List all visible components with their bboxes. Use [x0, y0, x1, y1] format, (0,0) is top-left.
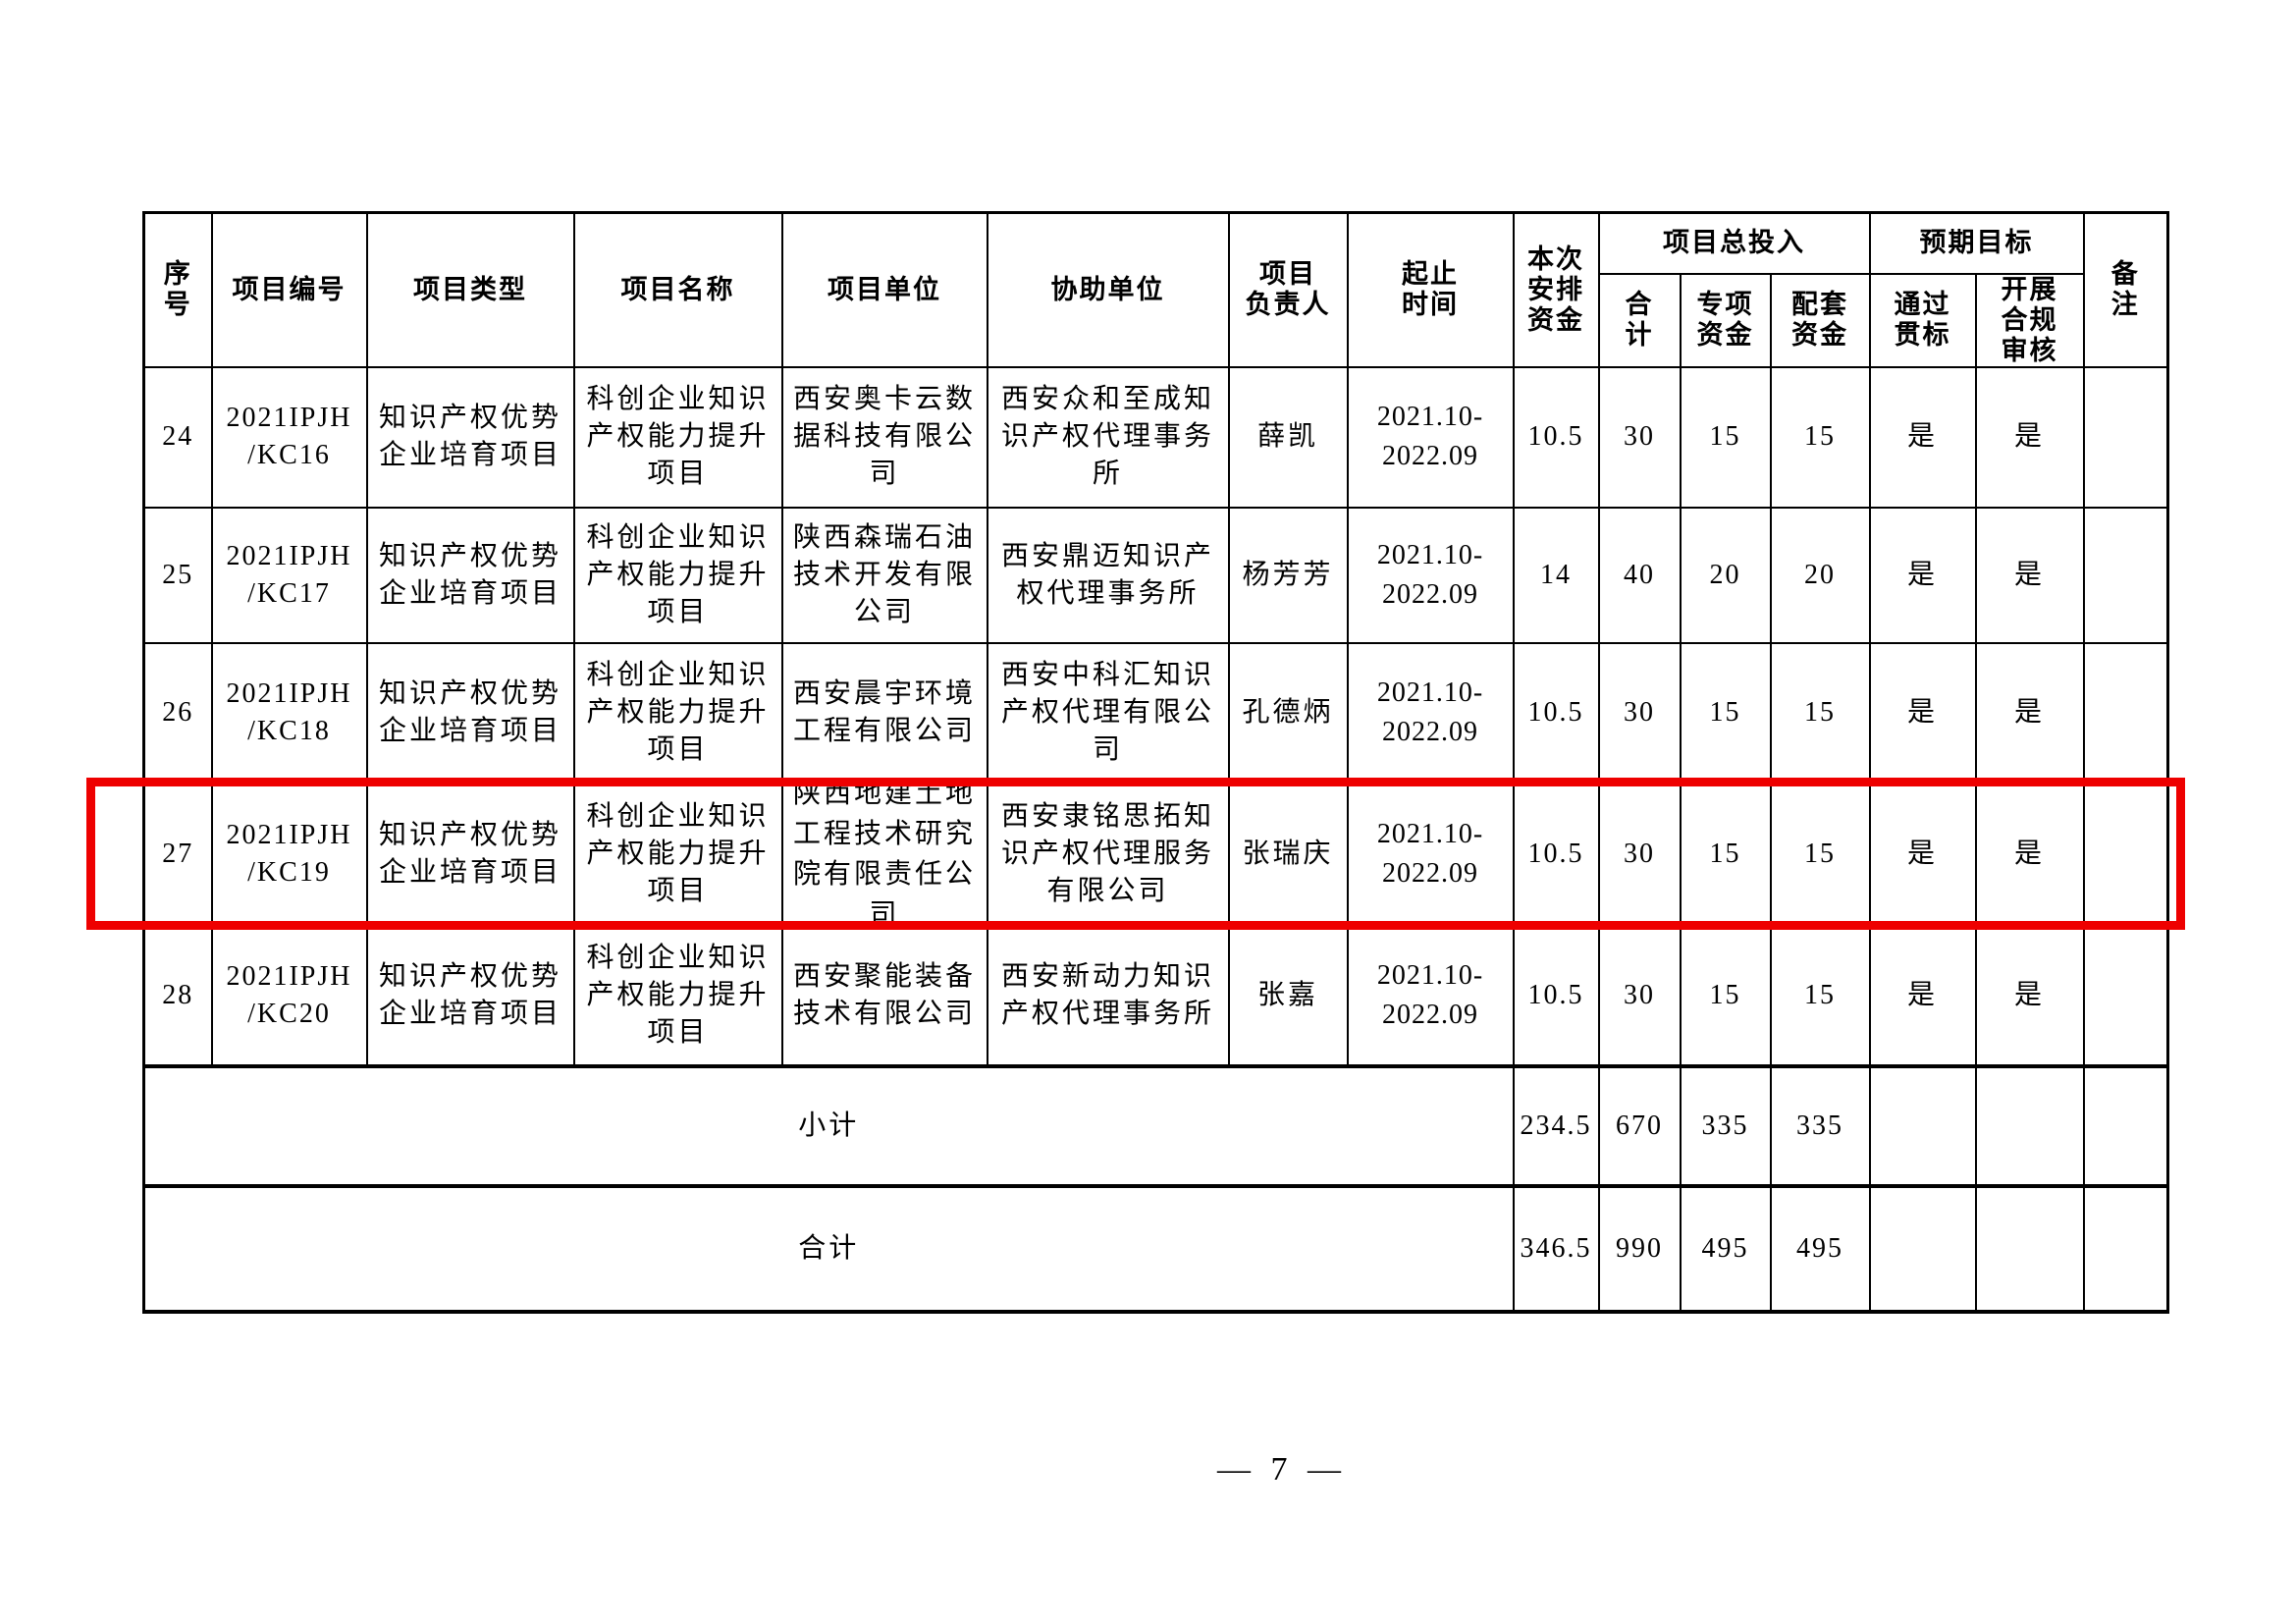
row24-code: 2021IPJH /KC16 — [212, 367, 367, 508]
row24-assist: 西安众和至成知 识产权代理事务 所 — [988, 367, 1229, 508]
row28-unit: 西安聚能装备 技术有限公司 — [782, 926, 988, 1066]
grand-total-review — [1976, 1186, 2084, 1312]
grand-total-special: 495 — [1681, 1186, 1771, 1312]
grand-total-total: 990 — [1599, 1186, 1681, 1312]
subtotal-label: 小计 — [144, 1066, 1514, 1186]
row28-pass: 是 — [1870, 926, 1976, 1066]
row24-matching: 15 — [1771, 367, 1870, 508]
header-remark: 备 注 — [2084, 213, 2168, 367]
row26-unit: 西安晨宇环境 工程有限公司 — [782, 643, 988, 784]
header-serial: 序 号 — [144, 213, 212, 367]
row28-period: 2021.10- 2022.09 — [1348, 926, 1514, 1066]
row28-name: 科创企业知识 产权能力提升 项目 — [574, 926, 782, 1066]
row27-unit-text: 陕西地建土地 工程技术研究 院有限责任公 司 — [793, 774, 976, 935]
row28-special: 15 — [1681, 926, 1771, 1066]
project-funding-table: 序 号 项目编号 项目类型 项目名称 项目单位 协助单位 项目 负责人 起止 时… — [142, 211, 2169, 1314]
row27-code: 2021IPJH /KC19 — [212, 784, 367, 926]
row24-pass: 是 — [1870, 367, 1976, 508]
row25-assist: 西安鼎迈知识产 权代理事务所 — [988, 508, 1229, 643]
row25-remark — [2084, 508, 2168, 643]
subtotal-row: 小计 234.5 670 335 335 — [144, 1066, 2168, 1186]
row24-period: 2021.10- 2022.09 — [1348, 367, 1514, 508]
row27-total: 30 — [1599, 784, 1681, 926]
grand-total-row: 合计 346.5 990 495 495 — [144, 1186, 2168, 1312]
header-current-fund: 本次 安排 资金 — [1514, 213, 1599, 367]
row24-unit: 西安奥卡云数 据科技有限公 司 — [782, 367, 988, 508]
row26-name: 科创企业知识 产权能力提升 项目 — [574, 643, 782, 784]
row25-serial: 25 — [144, 508, 212, 643]
row27-leader: 张瑞庆 — [1229, 784, 1348, 926]
row27-name: 科创企业知识 产权能力提升 项目 — [574, 784, 782, 926]
row24-special: 15 — [1681, 367, 1771, 508]
header-project-type: 项目类型 — [367, 213, 574, 367]
header-total-investment-group: 项目总投入 — [1599, 213, 1870, 274]
header-assist-unit: 协助单位 — [988, 213, 1229, 367]
header-compliance-review: 开展 合规 审核 — [1976, 274, 2084, 367]
row25-matching: 20 — [1771, 508, 1870, 643]
subtotal-total: 670 — [1599, 1066, 1681, 1186]
row26-serial: 26 — [144, 643, 212, 784]
header-matching-fund: 配套 资金 — [1771, 274, 1870, 367]
table-row-26: 26 2021IPJH /KC18 知识产权优势 企业培育项目 科创企业知识 产… — [144, 643, 2168, 784]
row27-matching: 15 — [1771, 784, 1870, 926]
row25-unit: 陕西森瑞石油 技术开发有限 公司 — [782, 508, 988, 643]
row26-remark — [2084, 643, 2168, 784]
row25-code: 2021IPJH /KC17 — [212, 508, 367, 643]
row27-review: 是 — [1976, 784, 2084, 926]
row27-assist: 西安隶铭思拓知 识产权代理服务 有限公司 — [988, 784, 1229, 926]
grand-total-pass — [1870, 1186, 1976, 1312]
page-number: — 7 — — [1217, 1451, 1347, 1489]
row24-total: 30 — [1599, 367, 1681, 508]
row25-fund: 14 — [1514, 508, 1599, 643]
row26-matching: 15 — [1771, 643, 1870, 784]
row27-period: 2021.10- 2022.09 — [1348, 784, 1514, 926]
subtotal-pass — [1870, 1066, 1976, 1186]
row26-period: 2021.10- 2022.09 — [1348, 643, 1514, 784]
row25-review: 是 — [1976, 508, 2084, 643]
row27-type: 知识产权优势 企业培育项目 — [367, 784, 574, 926]
row24-serial: 24 — [144, 367, 212, 508]
row28-code: 2021IPJH /KC20 — [212, 926, 367, 1066]
row28-review: 是 — [1976, 926, 2084, 1066]
row26-assist: 西安中科汇知识 产权代理有限公 司 — [988, 643, 1229, 784]
header-project-code: 项目编号 — [212, 213, 367, 367]
row27-pass: 是 — [1870, 784, 1976, 926]
row28-leader: 张嘉 — [1229, 926, 1348, 1066]
row25-period: 2021.10- 2022.09 — [1348, 508, 1514, 643]
grand-total-remark — [2084, 1186, 2168, 1312]
row27-unit: 陕西地建土地 工程技术研究 院有限责任公 司 — [782, 784, 988, 926]
row28-assist: 西安新动力知识 产权代理事务所 — [988, 926, 1229, 1066]
table-row-25: 25 2021IPJH /KC17 知识产权优势 企业培育项目 科创企业知识 产… — [144, 508, 2168, 643]
header-total: 合 计 — [1599, 274, 1681, 367]
header-project-name: 项目名称 — [574, 213, 782, 367]
row27-fund: 10.5 — [1514, 784, 1599, 926]
table-row-24: 24 2021IPJH /KC16 知识产权优势 企业培育项目 科创企业知识 产… — [144, 367, 2168, 508]
row26-special: 15 — [1681, 643, 1771, 784]
header-special-fund: 专项 资金 — [1681, 274, 1771, 367]
row25-total: 40 — [1599, 508, 1681, 643]
header-row-groups: 序 号 项目编号 项目类型 项目名称 项目单位 协助单位 项目 负责人 起止 时… — [144, 213, 2168, 274]
row28-serial: 28 — [144, 926, 212, 1066]
header-pass-standard: 通过 贯标 — [1870, 274, 1976, 367]
table-row-28: 28 2021IPJH /KC20 知识产权优势 企业培育项目 科创企业知识 产… — [144, 926, 2168, 1066]
row24-review: 是 — [1976, 367, 2084, 508]
row26-code: 2021IPJH /KC18 — [212, 643, 367, 784]
row26-leader: 孔德炳 — [1229, 643, 1348, 784]
table-row-27-highlighted: 27 2021IPJH /KC19 知识产权优势 企业培育项目 科创企业知识 产… — [144, 784, 2168, 926]
row28-remark — [2084, 926, 2168, 1066]
row28-total: 30 — [1599, 926, 1681, 1066]
row24-remark — [2084, 367, 2168, 508]
row28-type: 知识产权优势 企业培育项目 — [367, 926, 574, 1066]
header-expected-goal-group: 预期目标 — [1870, 213, 2084, 274]
grand-total-label: 合计 — [144, 1186, 1514, 1312]
row24-type: 知识产权优势 企业培育项目 — [367, 367, 574, 508]
row25-special: 20 — [1681, 508, 1771, 643]
row24-leader: 薛凯 — [1229, 367, 1348, 508]
row24-name: 科创企业知识 产权能力提升 项目 — [574, 367, 782, 508]
header-project-unit: 项目单位 — [782, 213, 988, 367]
subtotal-special: 335 — [1681, 1066, 1771, 1186]
row24-fund: 10.5 — [1514, 367, 1599, 508]
row25-leader: 杨芳芳 — [1229, 508, 1348, 643]
row25-type: 知识产权优势 企业培育项目 — [367, 508, 574, 643]
grand-total-fund: 346.5 — [1514, 1186, 1599, 1312]
row27-serial: 27 — [144, 784, 212, 926]
subtotal-matching: 335 — [1771, 1066, 1870, 1186]
header-project-leader: 项目 负责人 — [1229, 213, 1348, 367]
row27-remark — [2084, 784, 2168, 926]
subtotal-fund: 234.5 — [1514, 1066, 1599, 1186]
subtotal-review — [1976, 1066, 2084, 1186]
header-period: 起止 时间 — [1348, 213, 1514, 367]
row26-review: 是 — [1976, 643, 2084, 784]
subtotal-remark — [2084, 1066, 2168, 1186]
grand-total-matching: 495 — [1771, 1186, 1870, 1312]
row25-pass: 是 — [1870, 508, 1976, 643]
row26-pass: 是 — [1870, 643, 1976, 784]
row26-total: 30 — [1599, 643, 1681, 784]
row26-type: 知识产权优势 企业培育项目 — [367, 643, 574, 784]
row26-fund: 10.5 — [1514, 643, 1599, 784]
row25-name: 科创企业知识 产权能力提升 项目 — [574, 508, 782, 643]
row28-fund: 10.5 — [1514, 926, 1599, 1066]
row28-matching: 15 — [1771, 926, 1870, 1066]
row27-special: 15 — [1681, 784, 1771, 926]
